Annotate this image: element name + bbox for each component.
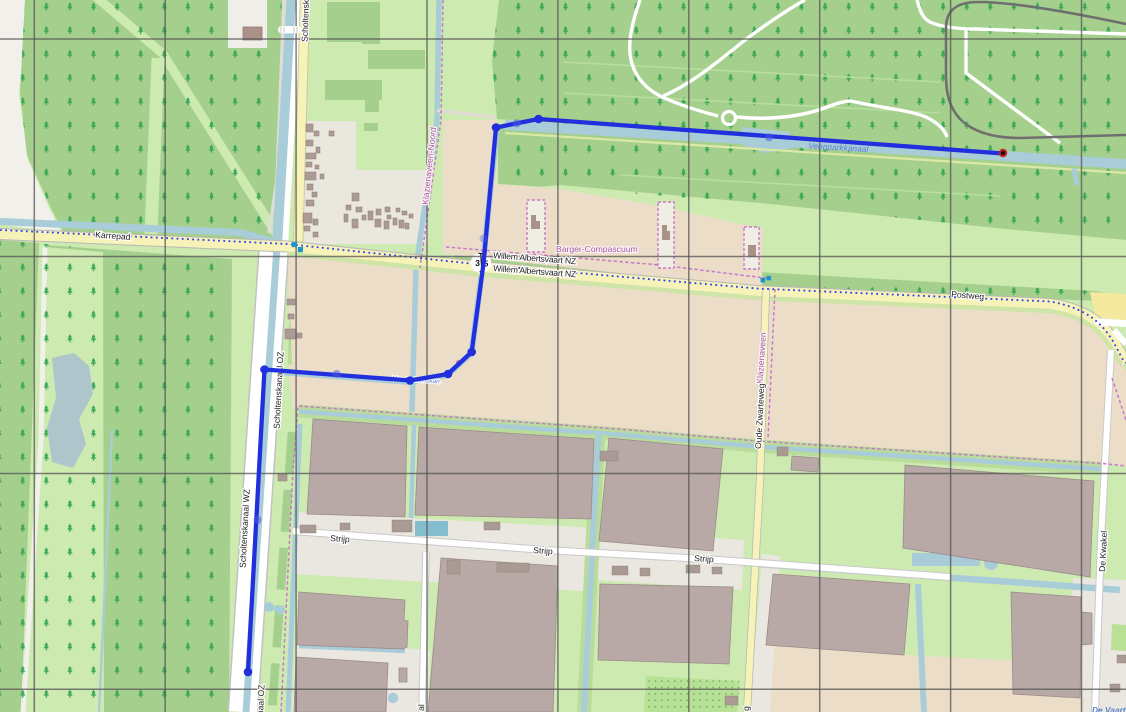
svg-text:Strijp: Strijp bbox=[694, 553, 714, 564]
svg-text:De Vaart: De Vaart bbox=[1092, 705, 1126, 712]
svg-text:Strijp: Strijp bbox=[330, 533, 350, 544]
svg-text:3: 3 bbox=[475, 258, 480, 268]
svg-text:Barger-Compascuum: Barger-Compascuum bbox=[556, 244, 638, 254]
svg-text:Strijp: Strijp bbox=[533, 545, 553, 556]
svg-text:al: al bbox=[416, 704, 426, 711]
svg-text:g: g bbox=[741, 706, 751, 711]
